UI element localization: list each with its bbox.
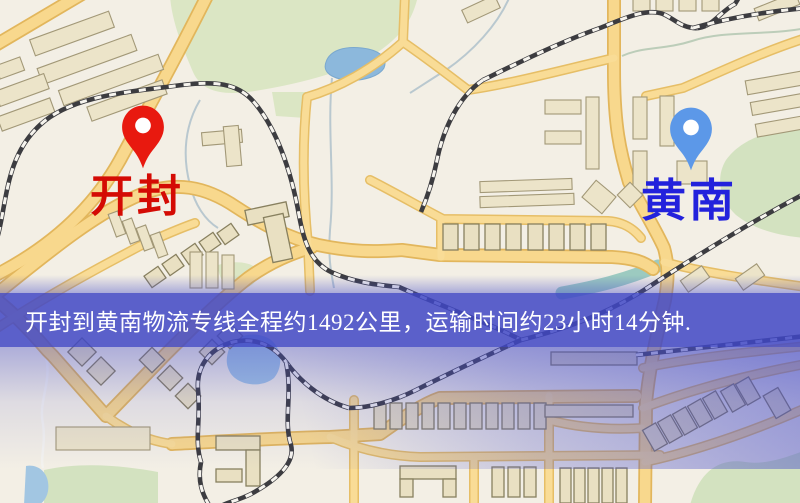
map-background	[0, 0, 800, 503]
destination-pin-icon[interactable]	[668, 106, 714, 172]
destination-city-label: 黄南	[641, 179, 737, 224]
origin-pin-icon[interactable]	[120, 104, 166, 170]
banner-top-glow	[0, 275, 800, 293]
route-info-banner: 开封到黄南物流专线全程约1492公里，运输时间约23小时14分钟.	[0, 293, 800, 347]
map-canvas: 开封到黄南物流专线全程约1492公里，运输时间约23小时14分钟. 开封 黄南	[0, 0, 800, 503]
route-info-text: 开封到黄南物流专线全程约1492公里，运输时间约23小时14分钟.	[0, 303, 691, 337]
origin-city-label: 开封	[90, 175, 184, 219]
